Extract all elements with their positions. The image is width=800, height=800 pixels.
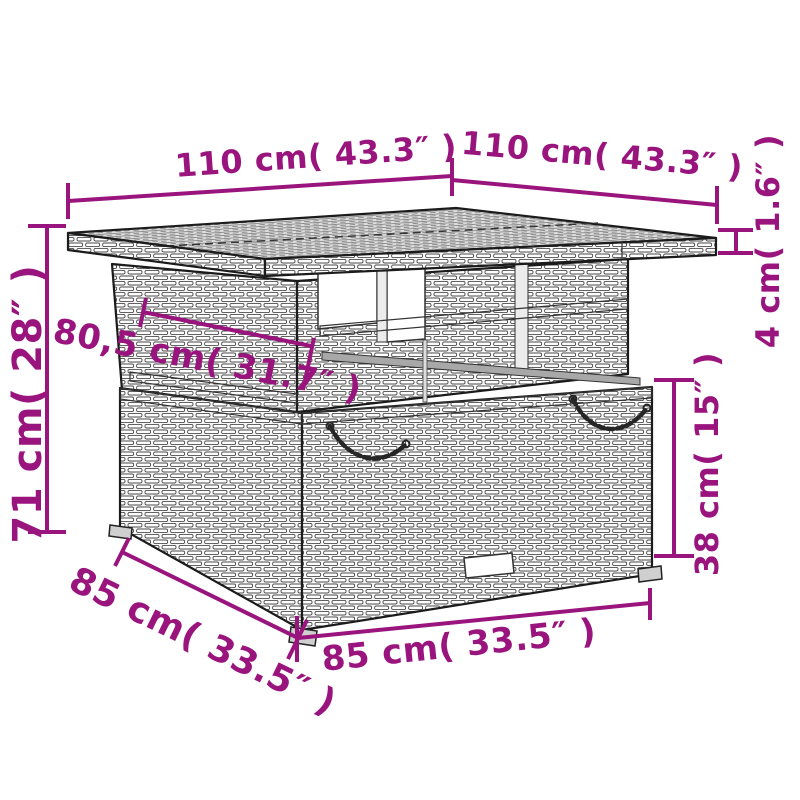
pedestal-window-left <box>318 267 377 329</box>
foot-left <box>109 525 132 539</box>
base-right-face <box>302 387 652 630</box>
dimension-label-base-height: 38 cm( 15″ ) <box>688 352 726 576</box>
foot-right <box>638 566 662 582</box>
pedestal <box>112 259 640 412</box>
dimension-bracket-tabletop-thickness <box>718 230 753 253</box>
inner-post <box>423 340 427 402</box>
dimension-label-tabletop-thickness: 4 cm( 1.6″ ) <box>749 134 787 348</box>
dimension-diagram: 110 cm( 43.3″ ) 110 cm( 43.3″ ) 4 cm( 1.… <box>0 0 800 800</box>
storage-base <box>109 387 662 646</box>
latch-plate <box>464 553 514 578</box>
product-dimension-drawing: 110 cm( 43.3″ ) 110 cm( 43.3″ ) 4 cm( 1.… <box>0 0 800 800</box>
dimension-label-tabletop-depth: 110 cm( 43.3″ ) <box>460 124 745 186</box>
dimension-label-total-height: 71 cm( 28″ ) <box>5 265 51 544</box>
dimension-label-tabletop-width: 110 cm( 43.3″ ) <box>174 127 458 185</box>
